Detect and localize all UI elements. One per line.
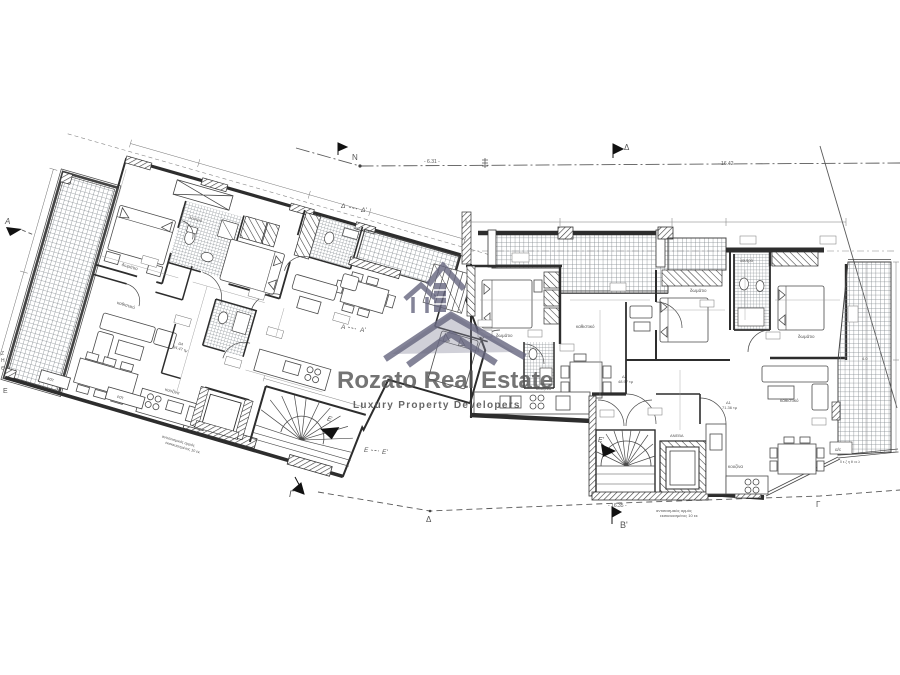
svg-text:Γ: Γ	[289, 489, 295, 499]
svg-text:Γ: Γ	[816, 500, 821, 509]
svg-text:4.0: 4.0	[862, 356, 868, 361]
svg-text:Ε': Ε'	[598, 437, 605, 444]
svg-text:Ζ: Ζ	[1, 351, 4, 357]
svg-text:δωμάτιο: δωμάτιο	[121, 261, 139, 271]
svg-text:δωμάτιο: δωμάτιο	[496, 332, 513, 338]
svg-text:- 16.35 -: - 16.35 -	[608, 503, 627, 509]
svg-text:α/c: α/c	[835, 447, 842, 452]
svg-text:δ ε ζ η θ ι κ λ: δ ε ζ η θ ι κ λ	[840, 460, 860, 464]
svg-text:- 6.31 -: - 6.31 -	[424, 159, 440, 165]
svg-text:Ε: Ε	[364, 447, 369, 454]
svg-text:δωμάτιο: δωμάτιο	[798, 333, 815, 339]
svg-text:N: N	[352, 153, 358, 162]
svg-text:δωμάτιο: δωμάτιο	[690, 287, 707, 293]
svg-text:Α: Α	[340, 324, 345, 331]
svg-text:Δ: Δ	[624, 143, 630, 152]
svg-text:B': B'	[620, 520, 628, 530]
svg-text:καθιστικό: καθιστικό	[576, 323, 595, 329]
svg-text:ΑΝΕΒΑ: ΑΝΕΒΑ	[670, 433, 684, 438]
svg-text:Α': Α'	[359, 327, 366, 334]
svg-text:λουτρό: λουτρό	[740, 258, 754, 263]
svg-text:A: A	[4, 217, 10, 226]
svg-text:εκσκευασμένος 10 εκ: εκσκευασμένος 10 εκ	[660, 513, 698, 518]
svg-text:κουζίνα: κουζίνα	[728, 464, 743, 469]
svg-text:71.36 τμ: 71.36 τμ	[722, 405, 738, 410]
svg-text:84.47 τμ: 84.47 τμ	[172, 344, 188, 353]
svg-text:Δ: Δ	[426, 515, 432, 524]
svg-text:- 16.42 -: - 16.42 -	[718, 161, 737, 167]
svg-text:Rozato Real Estate: Rozato Real Estate	[337, 367, 553, 394]
svg-text:Ε: Ε	[3, 388, 8, 395]
svg-text:Ε: Ε	[326, 416, 333, 424]
svg-text:Ε': Ε'	[382, 449, 388, 456]
svg-text:καθιστικό: καθιστικό	[116, 299, 136, 310]
svg-text:Luxury Property Developers: Luxury Property Developers	[353, 400, 521, 411]
svg-text:καθιστικό: καθιστικό	[780, 397, 799, 403]
svg-text:Η: Η	[1, 358, 5, 364]
svg-text:κουζίνα: κουζίνα	[164, 387, 180, 396]
